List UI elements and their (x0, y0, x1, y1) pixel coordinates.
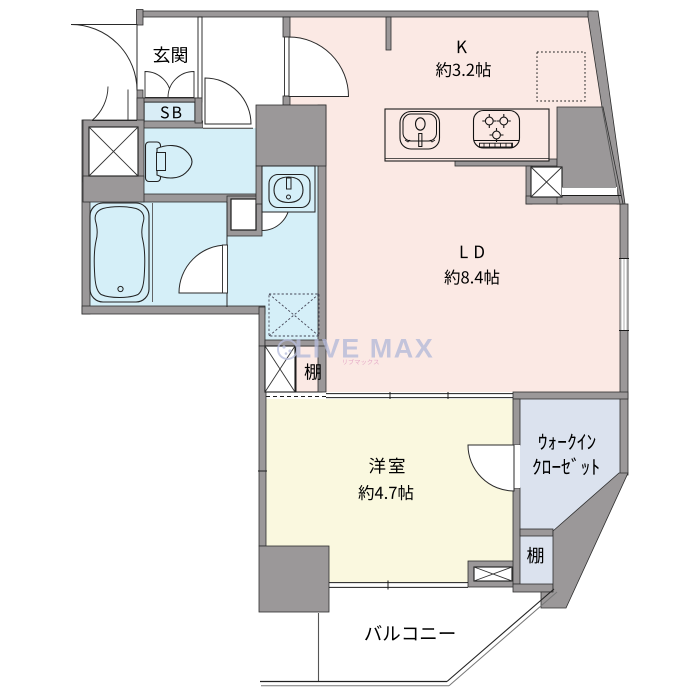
svg-text:LIVE MAX: LIVE MAX (295, 334, 435, 364)
